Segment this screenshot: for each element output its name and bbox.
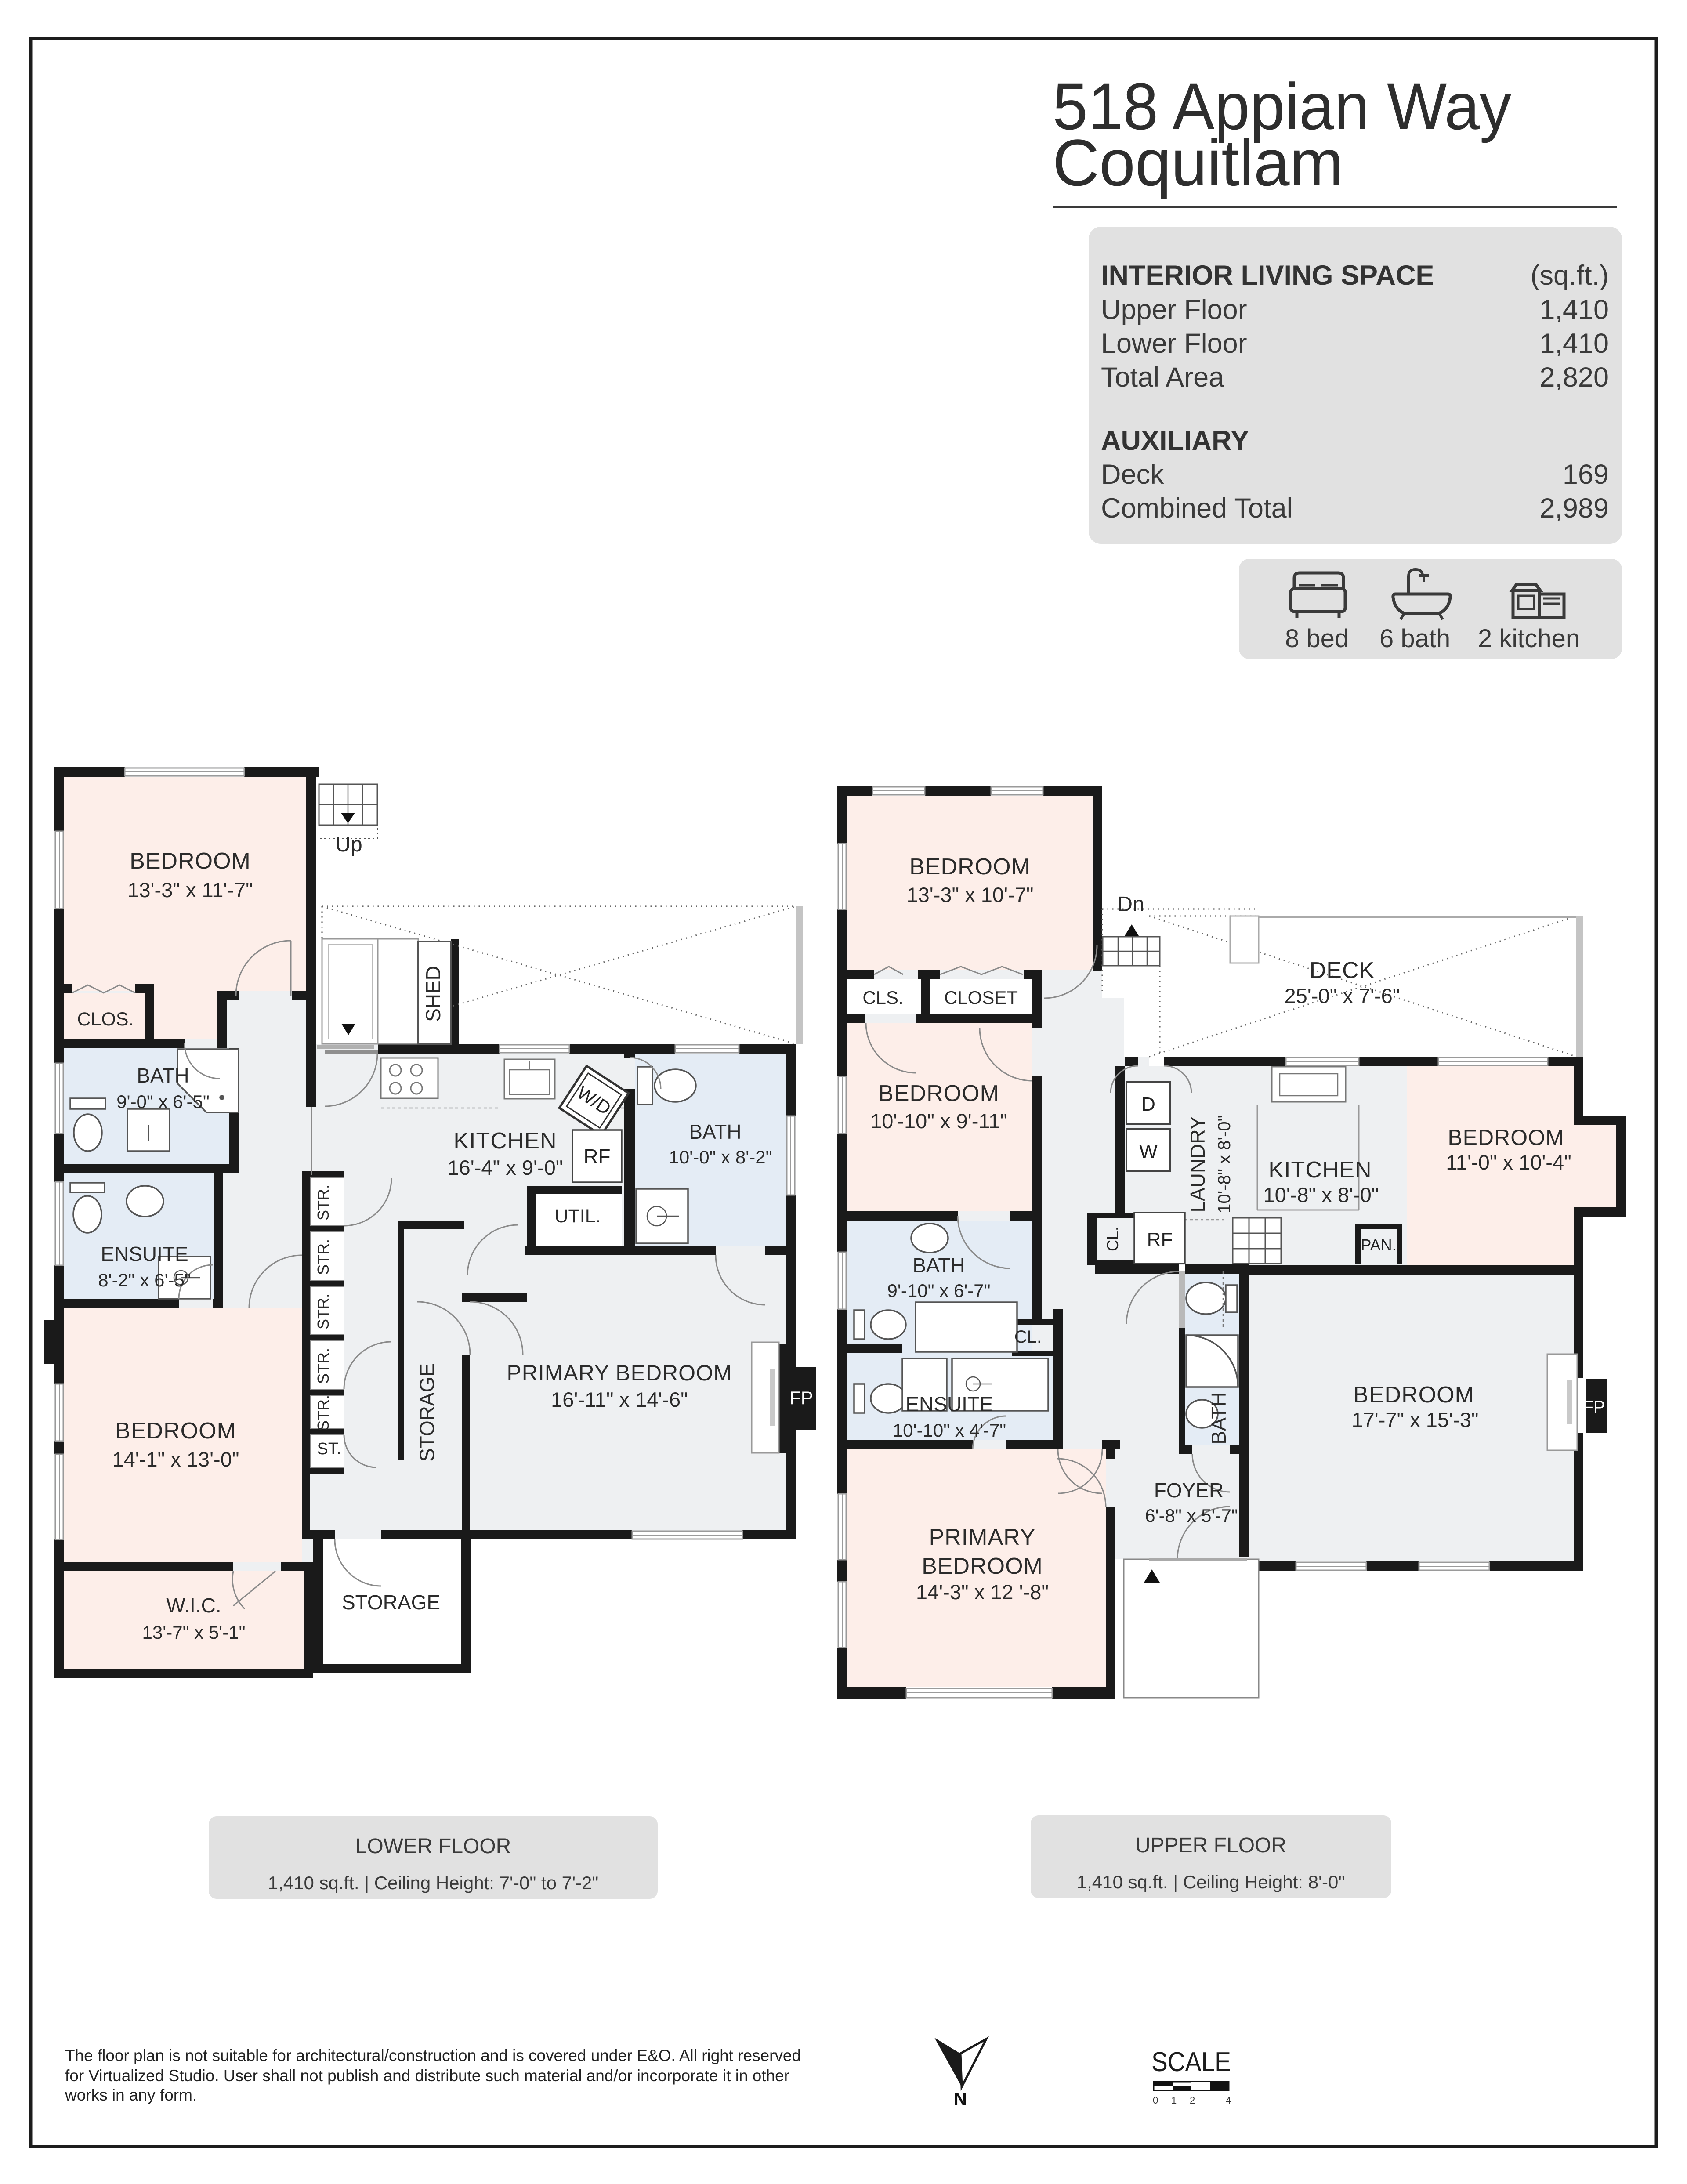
svg-text:works in any form.: works in any form.: [65, 2086, 197, 2104]
svg-text:10'-10" x 9'-11": 10'-10" x 9'-11": [870, 1109, 1007, 1133]
svg-text:PRIMARY BEDROOM: PRIMARY BEDROOM: [507, 1361, 732, 1385]
svg-text:SHED: SHED: [422, 966, 445, 1022]
svg-text:BEDROOM: BEDROOM: [1353, 1382, 1474, 1408]
svg-text:KITCHEN: KITCHEN: [1268, 1157, 1372, 1183]
svg-text:ENSUITE: ENSUITE: [905, 1393, 993, 1416]
svg-text:BATH: BATH: [137, 1064, 189, 1087]
svg-text:RF: RF: [1147, 1229, 1173, 1250]
svg-text:FOYER: FOYER: [1154, 1479, 1224, 1502]
svg-text:STR.: STR.: [314, 1239, 332, 1275]
svg-text:CLOS.: CLOS.: [77, 1009, 134, 1030]
svg-text:25'-0" x 7'-6": 25'-0" x 7'-6": [1285, 984, 1400, 1007]
svg-text:INTERIOR LIVING SPACE: INTERIOR LIVING SPACE: [1101, 260, 1434, 291]
svg-text:for Virtualized Studio. User s: for Virtualized Studio. User shall not p…: [65, 2067, 789, 2085]
svg-text:W: W: [1139, 1141, 1158, 1163]
svg-text:13'-7" x 5'-1": 13'-7" x 5'-1": [142, 1622, 246, 1643]
svg-text:FP: FP: [1582, 1398, 1605, 1417]
svg-text:ENSUITE: ENSUITE: [101, 1242, 188, 1265]
svg-text:1,410 sq.ft. | Ceiling Height:: 1,410 sq.ft. | Ceiling Height: 7'-0" to …: [268, 1873, 599, 1893]
svg-text:BATH: BATH: [689, 1120, 741, 1143]
svg-text:14'-1" x 13'-0": 14'-1" x 13'-0": [112, 1448, 239, 1471]
svg-text:10'-8" x 8'-0": 10'-8" x 8'-0": [1263, 1183, 1379, 1206]
svg-text:Combined Total: Combined Total: [1101, 493, 1293, 524]
svg-text:(sq.ft.): (sq.ft.): [1530, 260, 1609, 291]
svg-text:BEDROOM: BEDROOM: [115, 1418, 236, 1444]
svg-text:N: N: [954, 2089, 967, 2109]
svg-text:1,410 sq.ft. | Ceiling Height:: 1,410 sq.ft. | Ceiling Height: 8'-0": [1077, 1872, 1345, 1892]
svg-text:UTIL.: UTIL.: [554, 1206, 601, 1227]
svg-text:Upper Floor: Upper Floor: [1101, 294, 1247, 325]
svg-text:8 bed: 8 bed: [1285, 624, 1349, 653]
svg-text:2,820: 2,820: [1539, 362, 1609, 393]
svg-text:Total Area: Total Area: [1101, 362, 1224, 393]
svg-text:Dn: Dn: [1117, 893, 1144, 916]
svg-text:BEDROOM: BEDROOM: [909, 854, 1031, 880]
svg-text:BEDROOM: BEDROOM: [922, 1554, 1043, 1579]
svg-text:1: 1: [1171, 2095, 1177, 2106]
svg-text:STR.: STR.: [314, 1348, 332, 1384]
svg-text:10'-0" x 8'-2": 10'-0" x 8'-2": [669, 1147, 772, 1167]
svg-text:DECK: DECK: [1310, 958, 1375, 983]
svg-text:PRIMARY: PRIMARY: [929, 1525, 1036, 1550]
svg-text:Deck: Deck: [1101, 459, 1164, 490]
svg-text:CLS.: CLS.: [862, 987, 903, 1008]
svg-text:UPPER FLOOR: UPPER FLOOR: [1135, 1834, 1286, 1857]
svg-text:10'-8" x 8'-0": 10'-8" x 8'-0": [1215, 1115, 1234, 1213]
svg-text:D: D: [1141, 1094, 1155, 1115]
svg-text:W.I.C.: W.I.C.: [166, 1594, 221, 1617]
svg-text:LAUNDRY: LAUNDRY: [1186, 1116, 1209, 1213]
svg-text:6'-8" x 5'-7": 6'-8" x 5'-7": [1145, 1505, 1238, 1526]
svg-text:16'-4" x 9'-0": 16'-4" x 9'-0": [448, 1156, 563, 1179]
svg-text:BEDROOM: BEDROOM: [130, 848, 251, 874]
svg-text:13'-3" x 11'-7": 13'-3" x 11'-7": [127, 878, 253, 902]
svg-text:9'-0" x 6'-5": 9'-0" x 6'-5": [116, 1091, 210, 1112]
svg-text:KITCHEN: KITCHEN: [453, 1128, 557, 1154]
svg-text:0: 0: [1153, 2095, 1158, 2106]
svg-text:STR.: STR.: [314, 1293, 332, 1329]
svg-text:14'-3" x 12 '-8": 14'-3" x 12 '-8": [916, 1580, 1049, 1604]
svg-text:4: 4: [1226, 2095, 1231, 2106]
svg-text:17'-7" x 15'-3": 17'-7" x 15'-3": [1351, 1408, 1478, 1431]
svg-text:CLOSET: CLOSET: [944, 987, 1018, 1008]
svg-text:8'-2" x 6'-5": 8'-2" x 6'-5": [98, 1270, 191, 1290]
svg-text:STR.: STR.: [314, 1395, 332, 1431]
svg-text:9'-10" x 6'-7": 9'-10" x 6'-7": [887, 1280, 991, 1301]
svg-text:6 bath: 6 bath: [1379, 624, 1450, 653]
svg-text:Coquitlam: Coquitlam: [1053, 126, 1343, 199]
svg-text:BEDROOM: BEDROOM: [1448, 1125, 1564, 1150]
svg-text:169: 169: [1563, 459, 1609, 490]
svg-text:13'-3" x 10'-7": 13'-3" x 10'-7": [906, 883, 1033, 906]
svg-text:2: 2: [1190, 2095, 1195, 2106]
svg-text:1,410: 1,410: [1539, 294, 1609, 325]
svg-text:STR.: STR.: [314, 1184, 332, 1221]
svg-text:2,989: 2,989: [1539, 493, 1609, 524]
svg-text:10'-10" x 4'-7": 10'-10" x 4'-7": [893, 1420, 1006, 1441]
svg-text:BATH: BATH: [1207, 1392, 1230, 1444]
svg-text:CL.: CL.: [1014, 1327, 1042, 1347]
svg-text:CL.: CL.: [1104, 1227, 1122, 1251]
svg-text:Up: Up: [335, 833, 362, 856]
svg-text:RF: RF: [583, 1145, 610, 1168]
svg-text:The floor plan is not suitable: The floor plan is not suitable for archi…: [65, 2046, 801, 2064]
svg-text:FP: FP: [789, 1387, 813, 1408]
svg-text:PAN.: PAN.: [1361, 1236, 1396, 1254]
svg-text:BEDROOM: BEDROOM: [878, 1081, 999, 1106]
svg-text:1,410: 1,410: [1539, 328, 1609, 359]
svg-text:ST.: ST.: [317, 1440, 341, 1458]
svg-text:16'-11" x 14'-6": 16'-11" x 14'-6": [551, 1388, 688, 1411]
svg-text:BATH: BATH: [912, 1254, 965, 1277]
svg-text:STORAGE: STORAGE: [416, 1363, 438, 1462]
svg-text:LOWER FLOOR: LOWER FLOOR: [355, 1835, 511, 1858]
svg-text:Lower Floor: Lower Floor: [1101, 328, 1247, 359]
svg-text:2 kitchen: 2 kitchen: [1478, 624, 1580, 653]
svg-text:STORAGE: STORAGE: [342, 1591, 440, 1614]
svg-text:AUXILIARY: AUXILIARY: [1101, 425, 1249, 456]
svg-text:SCALE: SCALE: [1151, 2047, 1231, 2077]
svg-text:11'-0" x 10'-4": 11'-0" x 10'-4": [1446, 1151, 1571, 1174]
